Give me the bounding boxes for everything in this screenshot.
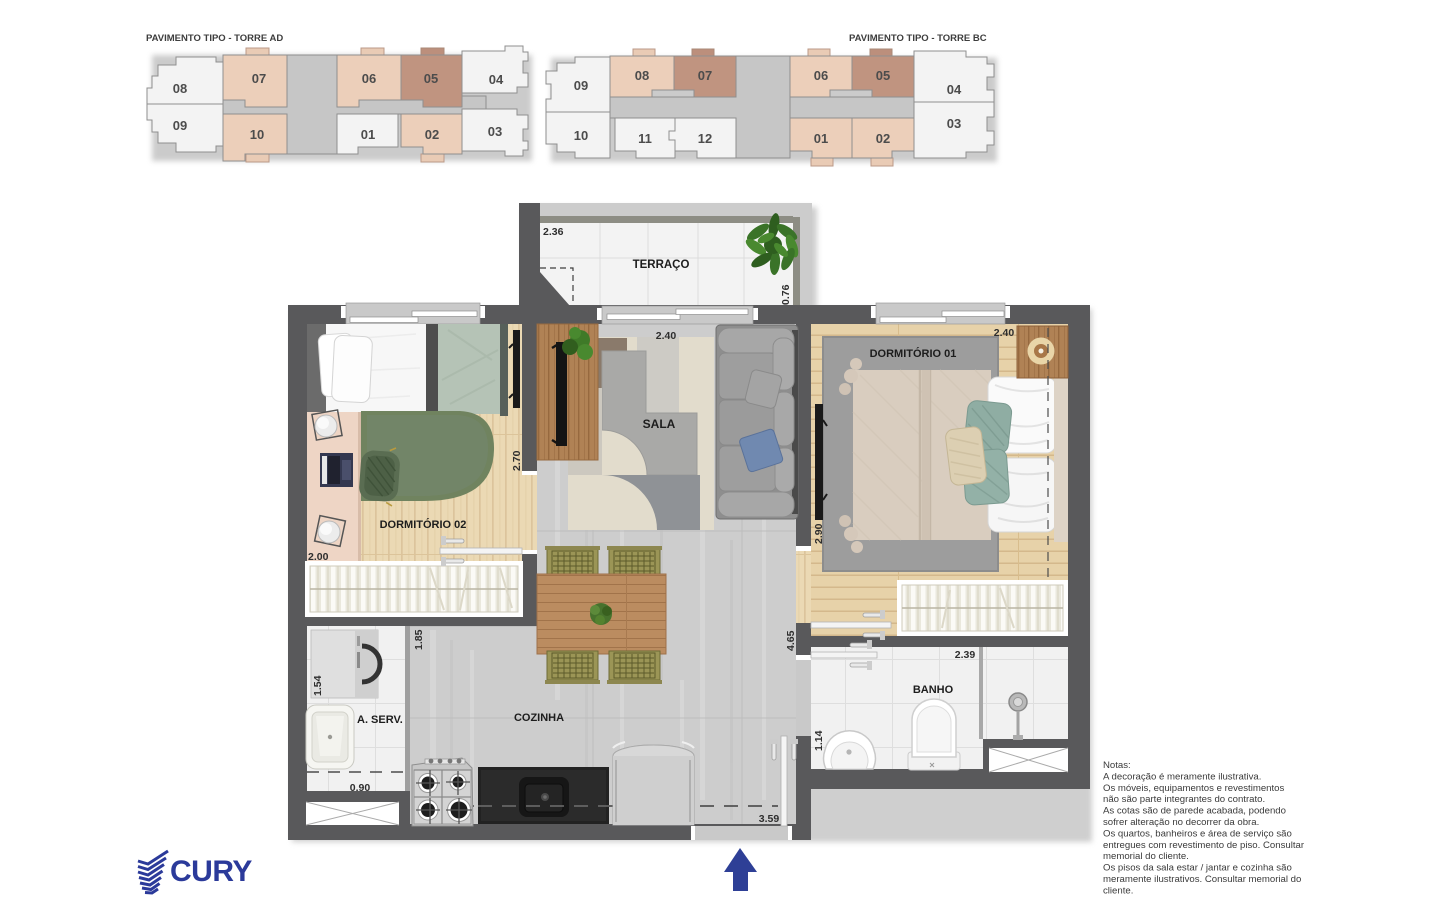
- svg-text:10: 10: [574, 128, 588, 143]
- svg-text:12: 12: [698, 131, 712, 146]
- svg-text:03: 03: [488, 124, 502, 139]
- svg-text:PAVIMENTO TIPO - TORRE AD: PAVIMENTO TIPO - TORRE AD: [146, 33, 283, 44]
- svg-text:entregues com revestimento de: entregues com revestimento de piso. Cons…: [1103, 840, 1305, 851]
- svg-text:não são parte integrantes do c: não são parte integrantes do contrato.: [1103, 794, 1265, 805]
- svg-text:DORMITÓRIO 01: DORMITÓRIO 01: [870, 347, 957, 360]
- svg-text:1.85: 1.85: [413, 629, 425, 650]
- svg-text:2.40: 2.40: [656, 330, 677, 342]
- svg-text:07: 07: [252, 71, 266, 86]
- svg-text:Os pisos da sala estar / janta: Os pisos da sala estar / jantar e cozinh…: [1103, 863, 1292, 874]
- svg-text:2.00: 2.00: [308, 551, 329, 563]
- svg-text:2.70: 2.70: [511, 450, 523, 471]
- svg-text:0.76: 0.76: [780, 284, 792, 305]
- svg-text:Os quartos, banheiros e área d: Os quartos, banheiros e área de serviço …: [1103, 828, 1292, 839]
- svg-text:03: 03: [947, 116, 961, 131]
- svg-text:06: 06: [362, 71, 376, 86]
- svg-text:SALA: SALA: [643, 417, 676, 431]
- svg-text:CURY: CURY: [170, 855, 252, 888]
- svg-text:05: 05: [876, 68, 890, 83]
- svg-text:01: 01: [361, 127, 375, 142]
- svg-text:0.90: 0.90: [350, 782, 371, 794]
- svg-text:04: 04: [489, 72, 504, 87]
- svg-text:08: 08: [173, 81, 187, 96]
- svg-text:4.65: 4.65: [785, 630, 797, 651]
- svg-text:1.54: 1.54: [312, 675, 324, 696]
- svg-text:cliente.: cliente.: [1103, 885, 1133, 896]
- svg-text:memorial do cliente.: memorial do cliente.: [1103, 851, 1189, 862]
- svg-text:sofrer alteração no decorrer d: sofrer alteração no decorrer da obra.: [1103, 817, 1259, 828]
- svg-text:04: 04: [947, 82, 962, 97]
- svg-text:Os móveis, equipamentos e reve: Os móveis, equipamentos e revestimentos: [1103, 783, 1285, 794]
- svg-text:2.39: 2.39: [955, 649, 976, 661]
- svg-text:3.59: 3.59: [759, 813, 780, 825]
- svg-text:Notas:: Notas:: [1103, 760, 1131, 771]
- svg-text:PAVIMENTO TIPO - TORRE BC: PAVIMENTO TIPO - TORRE BC: [849, 33, 987, 44]
- svg-text:09: 09: [574, 78, 588, 93]
- svg-text:meramente ilustrativos. Consul: meramente ilustrativos. Consultar memori…: [1103, 874, 1301, 885]
- svg-text:10: 10: [250, 127, 264, 142]
- svg-text:A decoração é meramente ilustr: A decoração é meramente ilustrativa.: [1103, 771, 1261, 782]
- svg-text:09: 09: [173, 118, 187, 133]
- svg-text:TERRAÇO: TERRAÇO: [633, 259, 690, 271]
- svg-text:1.14: 1.14: [813, 730, 825, 751]
- svg-text:08: 08: [635, 68, 649, 83]
- svg-text:2.90: 2.90: [813, 523, 825, 544]
- svg-text:DORMITÓRIO 02: DORMITÓRIO 02: [380, 518, 467, 531]
- svg-text:As cotas são de parede acabada: As cotas são de parede acabada, podendo: [1103, 806, 1286, 817]
- svg-text:2.36: 2.36: [543, 226, 564, 238]
- svg-text:BANHO: BANHO: [913, 684, 954, 696]
- svg-text:02: 02: [876, 131, 890, 146]
- svg-text:A. SERV.: A. SERV.: [357, 714, 403, 726]
- svg-text:07: 07: [698, 68, 712, 83]
- svg-text:01: 01: [814, 131, 828, 146]
- svg-text:2.40: 2.40: [994, 327, 1015, 339]
- svg-text:11: 11: [638, 131, 652, 146]
- svg-text:COZINHA: COZINHA: [514, 712, 564, 724]
- svg-text:05: 05: [424, 71, 438, 86]
- svg-text:02: 02: [425, 127, 439, 142]
- svg-text:06: 06: [814, 68, 828, 83]
